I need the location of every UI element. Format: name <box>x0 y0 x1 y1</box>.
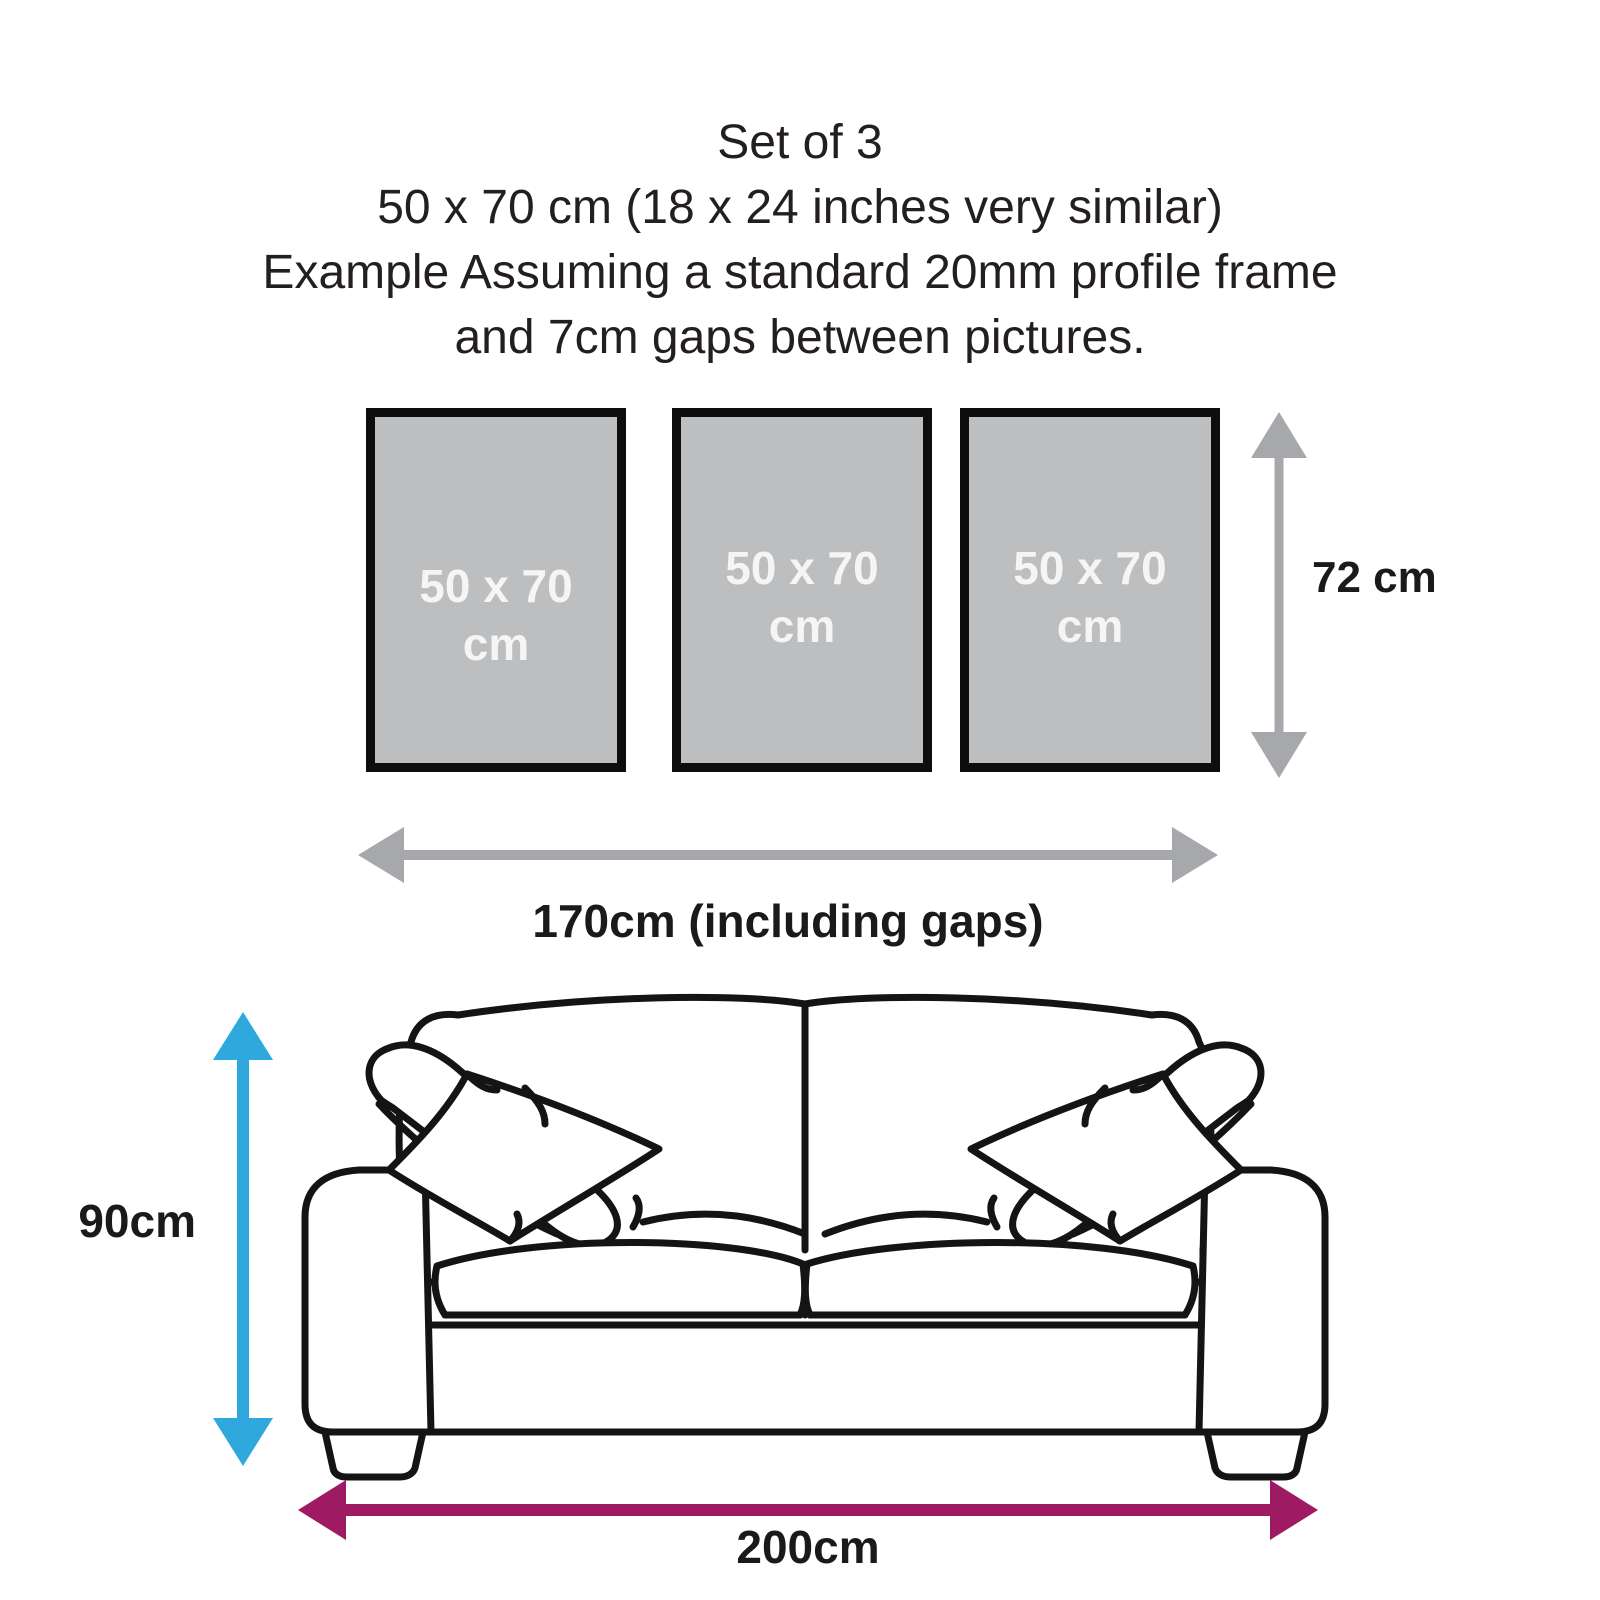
sofa-width-label: 200cm <box>296 1520 1320 1574</box>
title-line-3: Example Assuming a standard 20mm profile… <box>0 240 1600 305</box>
sofa-seat-cushion-right <box>805 1243 1195 1316</box>
sofa-right-foot <box>1207 1432 1305 1477</box>
title-line-1: Set of 3 <box>0 110 1600 175</box>
set-width-label: 170cm (including gaps) <box>356 894 1220 948</box>
frame-height-label: 72 cm <box>1312 552 1437 604</box>
set-width-arrowhead-right <box>1172 827 1218 883</box>
picture-frame-2: 50 x 70 cm <box>672 408 932 772</box>
sofa-right-arm <box>1199 1170 1325 1432</box>
frame-1-size-text: 50 x 70 <box>375 557 617 615</box>
frame-2-unit-text: cm <box>681 597 923 655</box>
picture-frame-3: 50 x 70 cm <box>960 408 1220 772</box>
set-width-double-arrow-icon <box>356 824 1220 886</box>
set-width-arrowhead-left <box>358 827 404 883</box>
sofa-height-double-arrow-icon <box>210 1010 276 1468</box>
sofa-height-label: 90cm <box>40 1194 196 1248</box>
frame-height-arrowhead-down <box>1251 732 1307 778</box>
frame-height-arrowhead-up <box>1251 412 1307 458</box>
title-line-4: and 7cm gaps between pictures. <box>0 305 1600 370</box>
frame-1-size-label: 50 x 70 cm <box>375 557 617 673</box>
picture-frame-1: 50 x 70 cm <box>366 408 626 772</box>
sofa-left-arm <box>305 1170 431 1432</box>
frame-2-size-label: 50 x 70 cm <box>681 539 923 655</box>
frame-1-unit-text: cm <box>375 615 617 673</box>
title-block: Set of 3 50 x 70 cm (18 x 24 inches very… <box>0 110 1600 370</box>
sofa-height-arrowhead-up <box>213 1012 273 1060</box>
frame-height-double-arrow-icon <box>1248 410 1310 780</box>
sofa-illustration <box>295 982 1335 1482</box>
size-guide-diagram: Set of 3 50 x 70 cm (18 x 24 inches very… <box>0 0 1600 1600</box>
sofa-left-foot <box>325 1432 423 1477</box>
frame-3-unit-text: cm <box>969 597 1211 655</box>
frame-2-size-text: 50 x 70 <box>681 539 923 597</box>
sofa-seat-cushion-left <box>435 1243 805 1316</box>
frame-3-size-text: 50 x 70 <box>969 539 1211 597</box>
frame-3-size-label: 50 x 70 cm <box>969 539 1211 655</box>
title-line-2: 50 x 70 cm (18 x 24 inches very similar) <box>0 175 1600 240</box>
sofa-height-arrowhead-down <box>213 1418 273 1466</box>
